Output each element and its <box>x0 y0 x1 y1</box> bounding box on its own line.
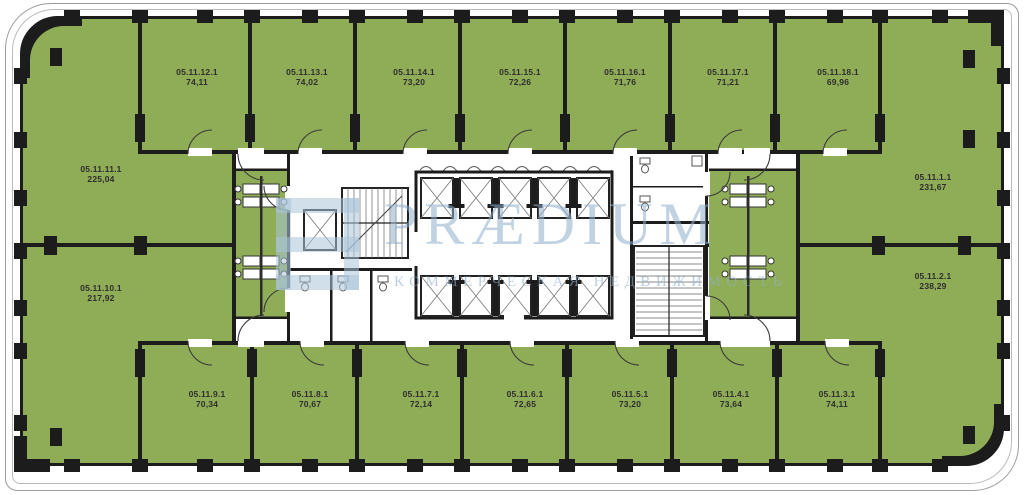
room-label: 05.11.14.173,20 <box>393 67 435 87</box>
room-label: 05.11.17.171,21 <box>707 67 749 87</box>
room-area: 73,20 <box>612 399 649 409</box>
room-id: 05.11.11.1 <box>80 164 121 174</box>
room-id: 05.11.10.1 <box>80 283 122 293</box>
stairwell-right <box>634 246 704 336</box>
room-id: 05.11.9.1 <box>189 389 226 399</box>
room-id: 05.11.5.1 <box>612 389 649 399</box>
room-label: 05.11.1.1231,67 <box>915 172 952 192</box>
room-id: 05.11.14.1 <box>393 67 435 77</box>
room-area: 71,21 <box>707 77 749 87</box>
room-id: 05.11.18.1 <box>817 67 859 77</box>
room-label: 05.11.5.173,20 <box>612 389 649 409</box>
room-area: 74,02 <box>286 77 328 87</box>
room-label: 05.11.3.174,11 <box>819 389 856 409</box>
room-area: 70,67 <box>292 399 329 409</box>
room-area: 72,26 <box>499 77 541 87</box>
room-id: 05.11.8.1 <box>292 389 329 399</box>
room-label: 05.11.4.173,64 <box>713 389 750 409</box>
room-area: 73,64 <box>713 399 750 409</box>
room-id: 05.11.15.1 <box>499 67 541 77</box>
room-area: 71,76 <box>604 77 646 87</box>
room-area: 238,29 <box>915 281 952 291</box>
room-area: 231,67 <box>915 182 952 192</box>
room-label: 05.11.11.1225,04 <box>80 164 121 184</box>
room-label: 05.11.9.170,34 <box>189 389 226 409</box>
room-label: 05.11.13.174,02 <box>286 67 328 87</box>
room-area: 74,11 <box>819 399 856 409</box>
room-label: 05.11.6.172,65 <box>507 389 544 409</box>
room-label: 05.11.2.1238,29 <box>915 271 952 291</box>
room-area: 74,11 <box>176 77 218 87</box>
room-area: 225,04 <box>80 174 121 184</box>
room-area: 69,96 <box>817 77 859 87</box>
room-area: 217,92 <box>80 293 122 303</box>
room-area: 72,14 <box>403 399 440 409</box>
room-id: 05.11.2.1 <box>915 271 952 281</box>
elevator-shaft <box>304 210 336 250</box>
room-label: 05.11.12.174,11 <box>176 67 218 87</box>
room-label: 05.11.16.171,76 <box>604 67 646 87</box>
room-label: 05.11.15.172,26 <box>499 67 541 87</box>
room-id: 05.11.16.1 <box>604 67 646 77</box>
room-area: 72,65 <box>507 399 544 409</box>
wc-left <box>300 276 388 291</box>
room-label: 05.11.8.170,67 <box>292 389 329 409</box>
wc-right <box>640 156 702 211</box>
room-id: 05.11.6.1 <box>507 389 544 399</box>
room-area: 70,34 <box>189 399 226 409</box>
floor-plan: 05.11.12.174,11 05.11.13.174,02 05.11.14… <box>0 0 1024 495</box>
room-label: 05.11.10.1217,92 <box>80 283 122 303</box>
stairwell-left <box>342 188 408 258</box>
room-id: 05.11.12.1 <box>176 67 218 77</box>
room-area: 73,20 <box>393 77 435 87</box>
room-id: 05.11.17.1 <box>707 67 749 77</box>
room-id: 05.11.7.1 <box>403 389 440 399</box>
room-id: 05.11.1.1 <box>915 172 952 182</box>
room-id: 05.11.13.1 <box>286 67 328 77</box>
room-label: 05.11.7.172,14 <box>403 389 440 409</box>
room-id: 05.11.3.1 <box>819 389 856 399</box>
room-label: 05.11.18.169,96 <box>817 67 859 87</box>
room-id: 05.11.4.1 <box>713 389 750 399</box>
elevator-bank <box>414 167 612 321</box>
